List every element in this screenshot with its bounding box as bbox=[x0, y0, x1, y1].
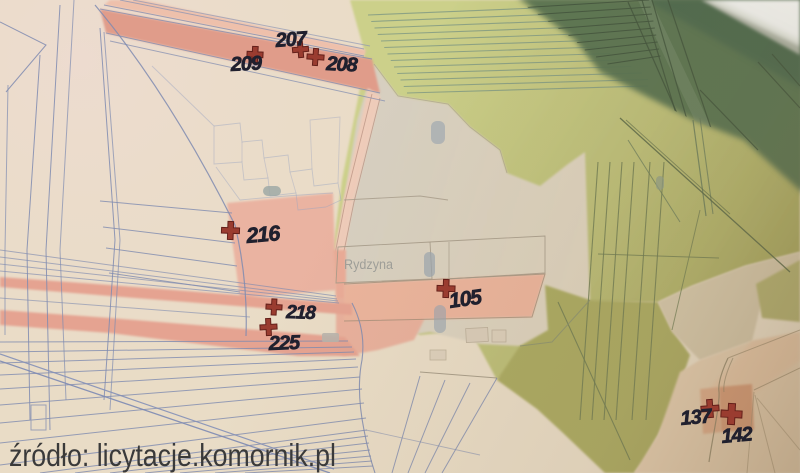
svg-text:137: 137 bbox=[680, 405, 714, 430]
svg-text:218: 218 bbox=[285, 302, 317, 324]
svg-text:225: 225 bbox=[267, 332, 301, 355]
svg-text:105: 105 bbox=[447, 286, 483, 313]
svg-text:źródło: licytacje.komornik.pl: źródło: licytacje.komornik.pl bbox=[9, 437, 336, 473]
svg-text:Rydzyna: Rydzyna bbox=[344, 257, 393, 272]
svg-text:142: 142 bbox=[721, 423, 754, 448]
svg-text:207: 207 bbox=[274, 28, 309, 52]
svg-text:209: 209 bbox=[229, 52, 263, 76]
svg-text:208: 208 bbox=[325, 53, 359, 77]
svg-text:216: 216 bbox=[244, 221, 282, 248]
